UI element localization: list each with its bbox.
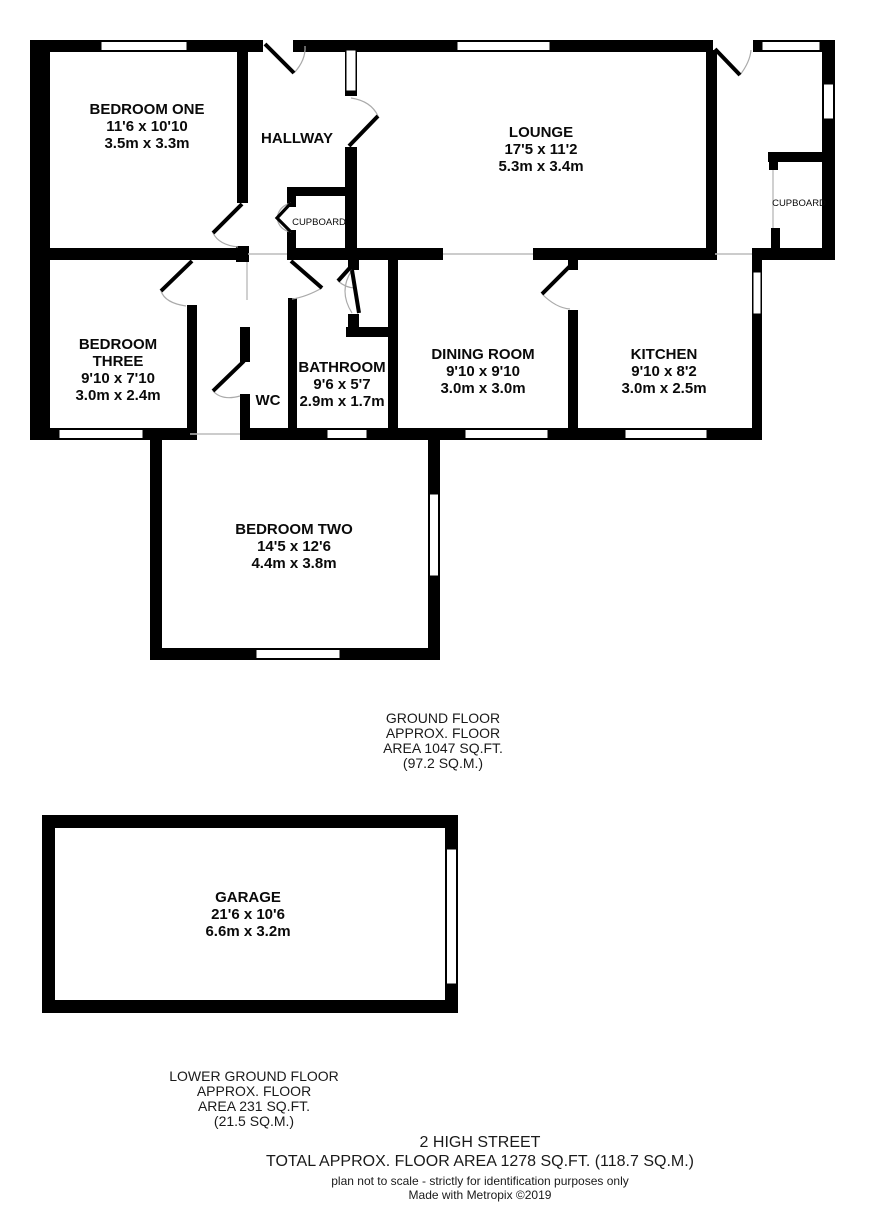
room-size-metric: 3.0m x 2.4m [75,387,160,404]
floorplan-page: BEDROOM ONE 11'6 x 10'10 3.5m x 3.3m HAL… [0,0,886,1209]
lower-ground-floor-summary: LOWER GROUND FLOOR APPROX. FLOOR AREA 23… [169,1069,339,1129]
room-label-cupboard-rear: CUPBOARD [772,198,826,209]
room-size-metric: 3.0m x 3.0m [431,380,534,397]
room-size-imperial: 9'6 x 5'7 [298,376,385,393]
room-label-cupboard-hall: CUPBOARD [292,217,346,228]
room-label-kitchen: KITCHEN 9'10 x 8'2 3.0m x 2.5m [621,346,706,397]
ground-floor-summary: GROUND FLOOR APPROX. FLOOR AREA 1047 SQ.… [383,711,503,771]
summary-line: (97.2 SQ.M.) [383,756,503,771]
room-label-bedroom-two: BEDROOM TWO 14'5 x 12'6 4.4m x 3.8m [235,521,353,572]
room-size-imperial: 9'10 x 7'10 [75,370,160,387]
room-label-lounge: LOUNGE 17'5 x 11'2 5.3m x 3.4m [498,124,583,175]
room-size-metric: 5.3m x 3.4m [498,158,583,175]
room-name: BATHROOM [298,359,385,376]
summary-line: GROUND FLOOR [383,711,503,726]
room-size-imperial: 9'10 x 9'10 [431,363,534,380]
room-name: WC [256,392,281,409]
room-name: HALLWAY [261,130,333,147]
summary-line: AREA 231 SQ.FT. [169,1099,339,1114]
total-floor-area: TOTAL APPROX. FLOOR AREA 1278 SQ.FT. (11… [266,1153,694,1171]
summary-line: AREA 1047 SQ.FT. [383,741,503,756]
room-size-imperial: 14'5 x 12'6 [235,538,353,555]
property-address: 2 HIGH STREET [420,1134,541,1152]
room-size-imperial: 11'6 x 10'10 [89,118,204,135]
room-name: GARAGE [205,889,290,906]
summary-line: LOWER GROUND FLOOR [169,1069,339,1084]
room-name: DINING ROOM [431,346,534,363]
room-name: LOUNGE [498,124,583,141]
room-label-bathroom: BATHROOM 9'6 x 5'7 2.9m x 1.7m [298,359,385,410]
room-name: BEDROOM TWO [235,521,353,538]
room-name: THREE [75,353,160,370]
room-size-imperial: 9'10 x 8'2 [621,363,706,380]
room-label-bedroom-one: BEDROOM ONE 11'6 x 10'10 3.5m x 3.3m [89,101,204,152]
room-label-wc: WC [256,392,281,409]
room-size-imperial: 17'5 x 11'2 [498,141,583,158]
room-size-metric: 3.5m x 3.3m [89,135,204,152]
summary-line: APPROX. FLOOR [169,1084,339,1099]
room-size-imperial: 21'6 x 10'6 [205,906,290,923]
room-size-metric: 4.4m x 3.8m [235,555,353,572]
room-label-bedroom-three: BEDROOM THREE 9'10 x 7'10 3.0m x 2.4m [75,336,160,404]
room-size-metric: 2.9m x 1.7m [298,393,385,410]
room-name: BEDROOM [75,336,160,353]
room-size-metric: 3.0m x 2.5m [621,380,706,397]
room-name: BEDROOM ONE [89,101,204,118]
room-label-garage: GARAGE 21'6 x 10'6 6.6m x 3.2m [205,889,290,940]
disclaimer-text: plan not to scale - strictly for identif… [331,1175,628,1188]
credit-text: Made with Metropix ©2019 [409,1189,552,1202]
room-name: KITCHEN [621,346,706,363]
floorplan-drawing [0,0,886,1209]
room-label-dining-room: DINING ROOM 9'10 x 9'10 3.0m x 3.0m [431,346,534,397]
summary-line: APPROX. FLOOR [383,726,503,741]
room-size-metric: 6.6m x 3.2m [205,923,290,940]
room-label-hallway: HALLWAY [261,130,333,147]
bifold-door [277,203,291,232]
summary-line: (21.5 SQ.M.) [169,1114,339,1129]
